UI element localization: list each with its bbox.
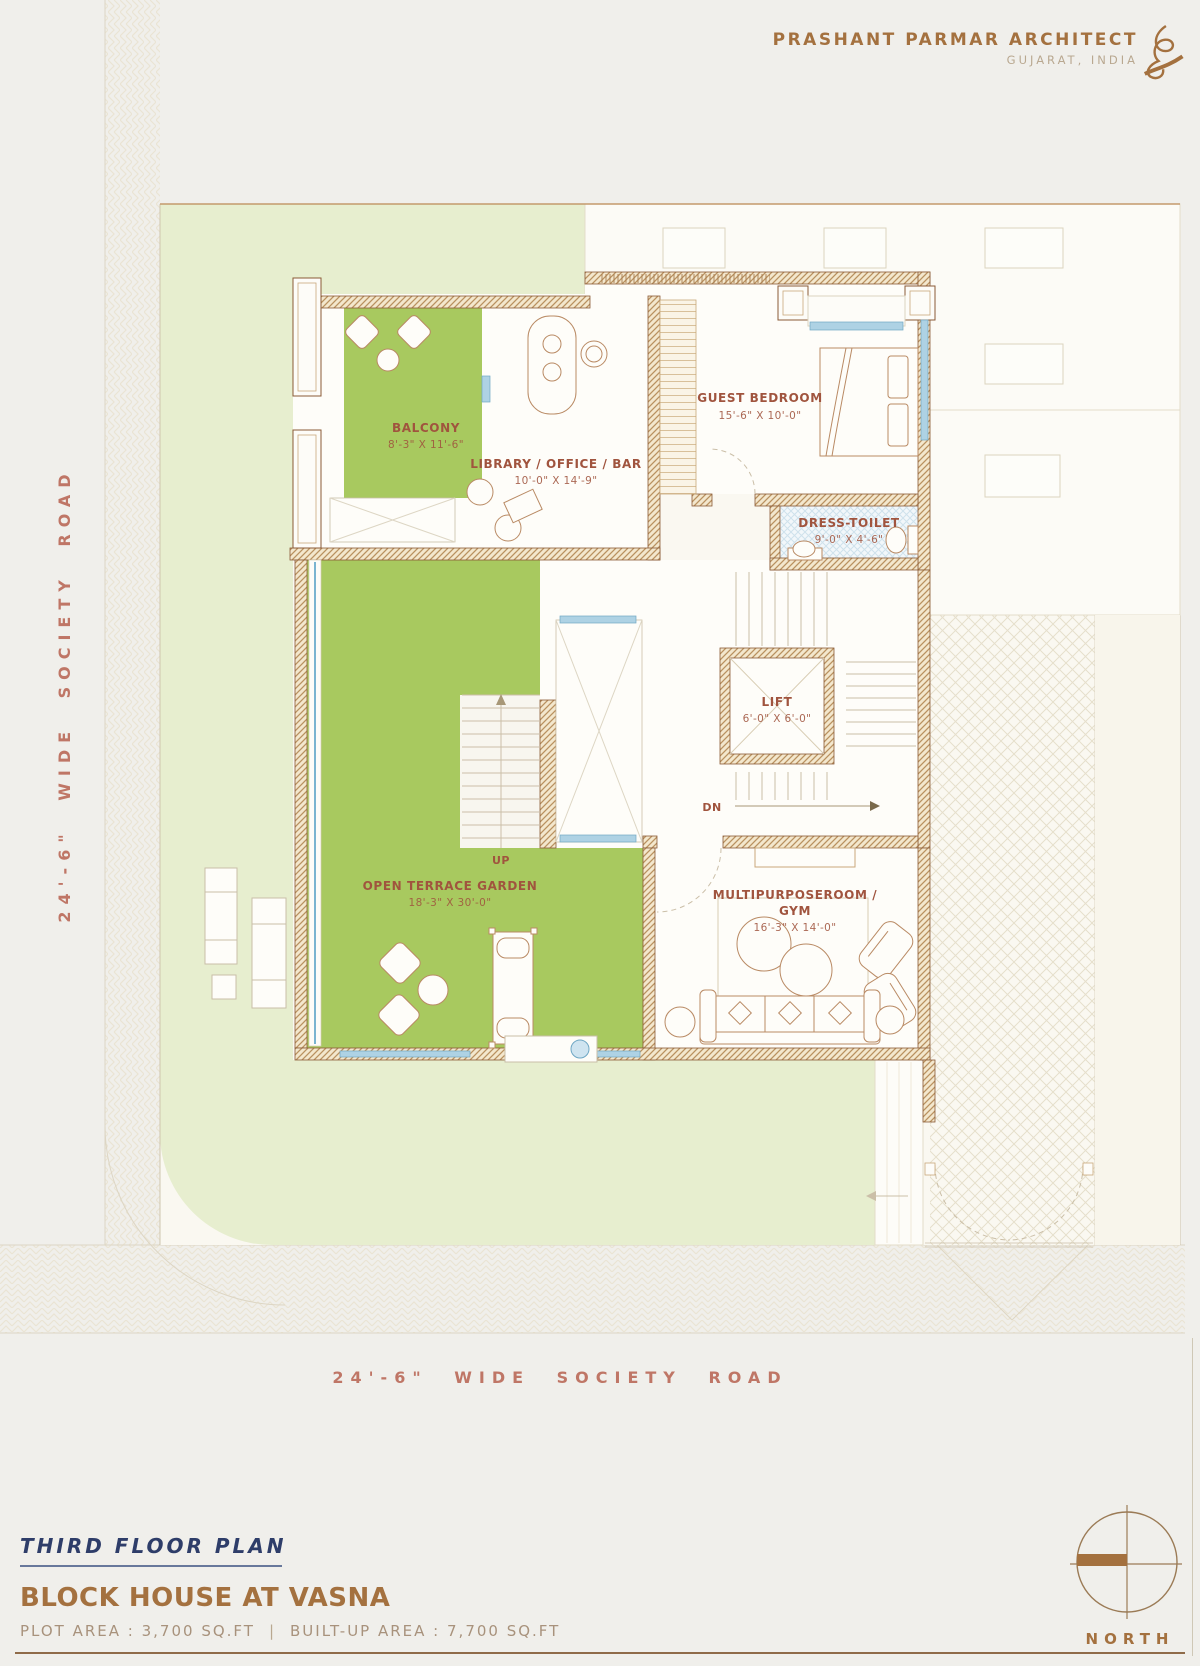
dress-toilet-dims: 9'-0" X 4'-6" [815, 534, 884, 546]
project-title: BLOCK HOUSE AT VASNA [20, 1583, 560, 1613]
compass-north-bar [1077, 1554, 1127, 1566]
driveway [930, 615, 1180, 1320]
lift-dims: 6'-0" X 6'-0" [743, 713, 812, 725]
guest-bedroom-dims: 15'-6" X 10'-0" [719, 410, 802, 422]
compass-label: NORTH [1086, 1630, 1175, 1648]
footer: THIRD FLOOR PLAN BLOCK HOUSE AT VASNA PL… [20, 1534, 560, 1640]
lift-label: LIFT [762, 695, 793, 709]
sofa [665, 990, 904, 1044]
gym-label-line2: GYM [779, 904, 811, 918]
sheet-bottom-rule [15, 1652, 1185, 1654]
library-label: LIBRARY / OFFICE / BAR [470, 457, 641, 471]
north-compass: NORTH [1050, 1498, 1200, 1658]
stair-down-label: DN [702, 801, 721, 814]
pergola-band [600, 274, 770, 283]
balcony-planter [330, 498, 455, 542]
gym-label-line1: MULTIPURPOSEROOM / [713, 888, 878, 902]
terrace-dims: 18'-3" X 30'-0" [409, 897, 492, 909]
built-up-area: BUILT-UP AREA : 7,700 SQ.FT [290, 1622, 560, 1640]
gym-dims: 16'-3" X 14'-0" [754, 922, 837, 934]
daybed [489, 928, 537, 1048]
plot-area: PLOT AREA : 3,700 SQ.FT [20, 1622, 255, 1640]
terrace-label: OPEN TERRACE GARDEN [363, 879, 538, 893]
balcony-label: BALCONY [392, 421, 460, 435]
area-separator: | [269, 1622, 276, 1640]
plan-title: THIRD FLOOR PLAN [20, 1534, 560, 1558]
wardrobe [660, 300, 696, 494]
bed [820, 348, 918, 456]
tv-niche [755, 848, 855, 867]
plan-sheet: PRASHANT PARMAR ARCHITECT GUJARAT, INDIA… [0, 0, 1200, 1666]
stair-up-label: UP [492, 854, 510, 867]
plan-title-underline [20, 1565, 282, 1567]
terrace-sill [505, 1036, 597, 1062]
balcony-dims: 8'-3" X 11'-6" [388, 439, 464, 451]
guest-bedroom-label: GUEST BEDROOM [697, 391, 823, 405]
dress-toilet-label: DRESS-TOILET [798, 516, 900, 530]
library-dims: 10'-0" X 14'-9" [515, 475, 598, 487]
floor-plan-drawing: BALCONY 8'-3" X 11'-6" LIBRARY / OFFICE … [0, 0, 1200, 1666]
area-line: PLOT AREA : 3,700 SQ.FT|BUILT-UP AREA : … [20, 1622, 560, 1640]
